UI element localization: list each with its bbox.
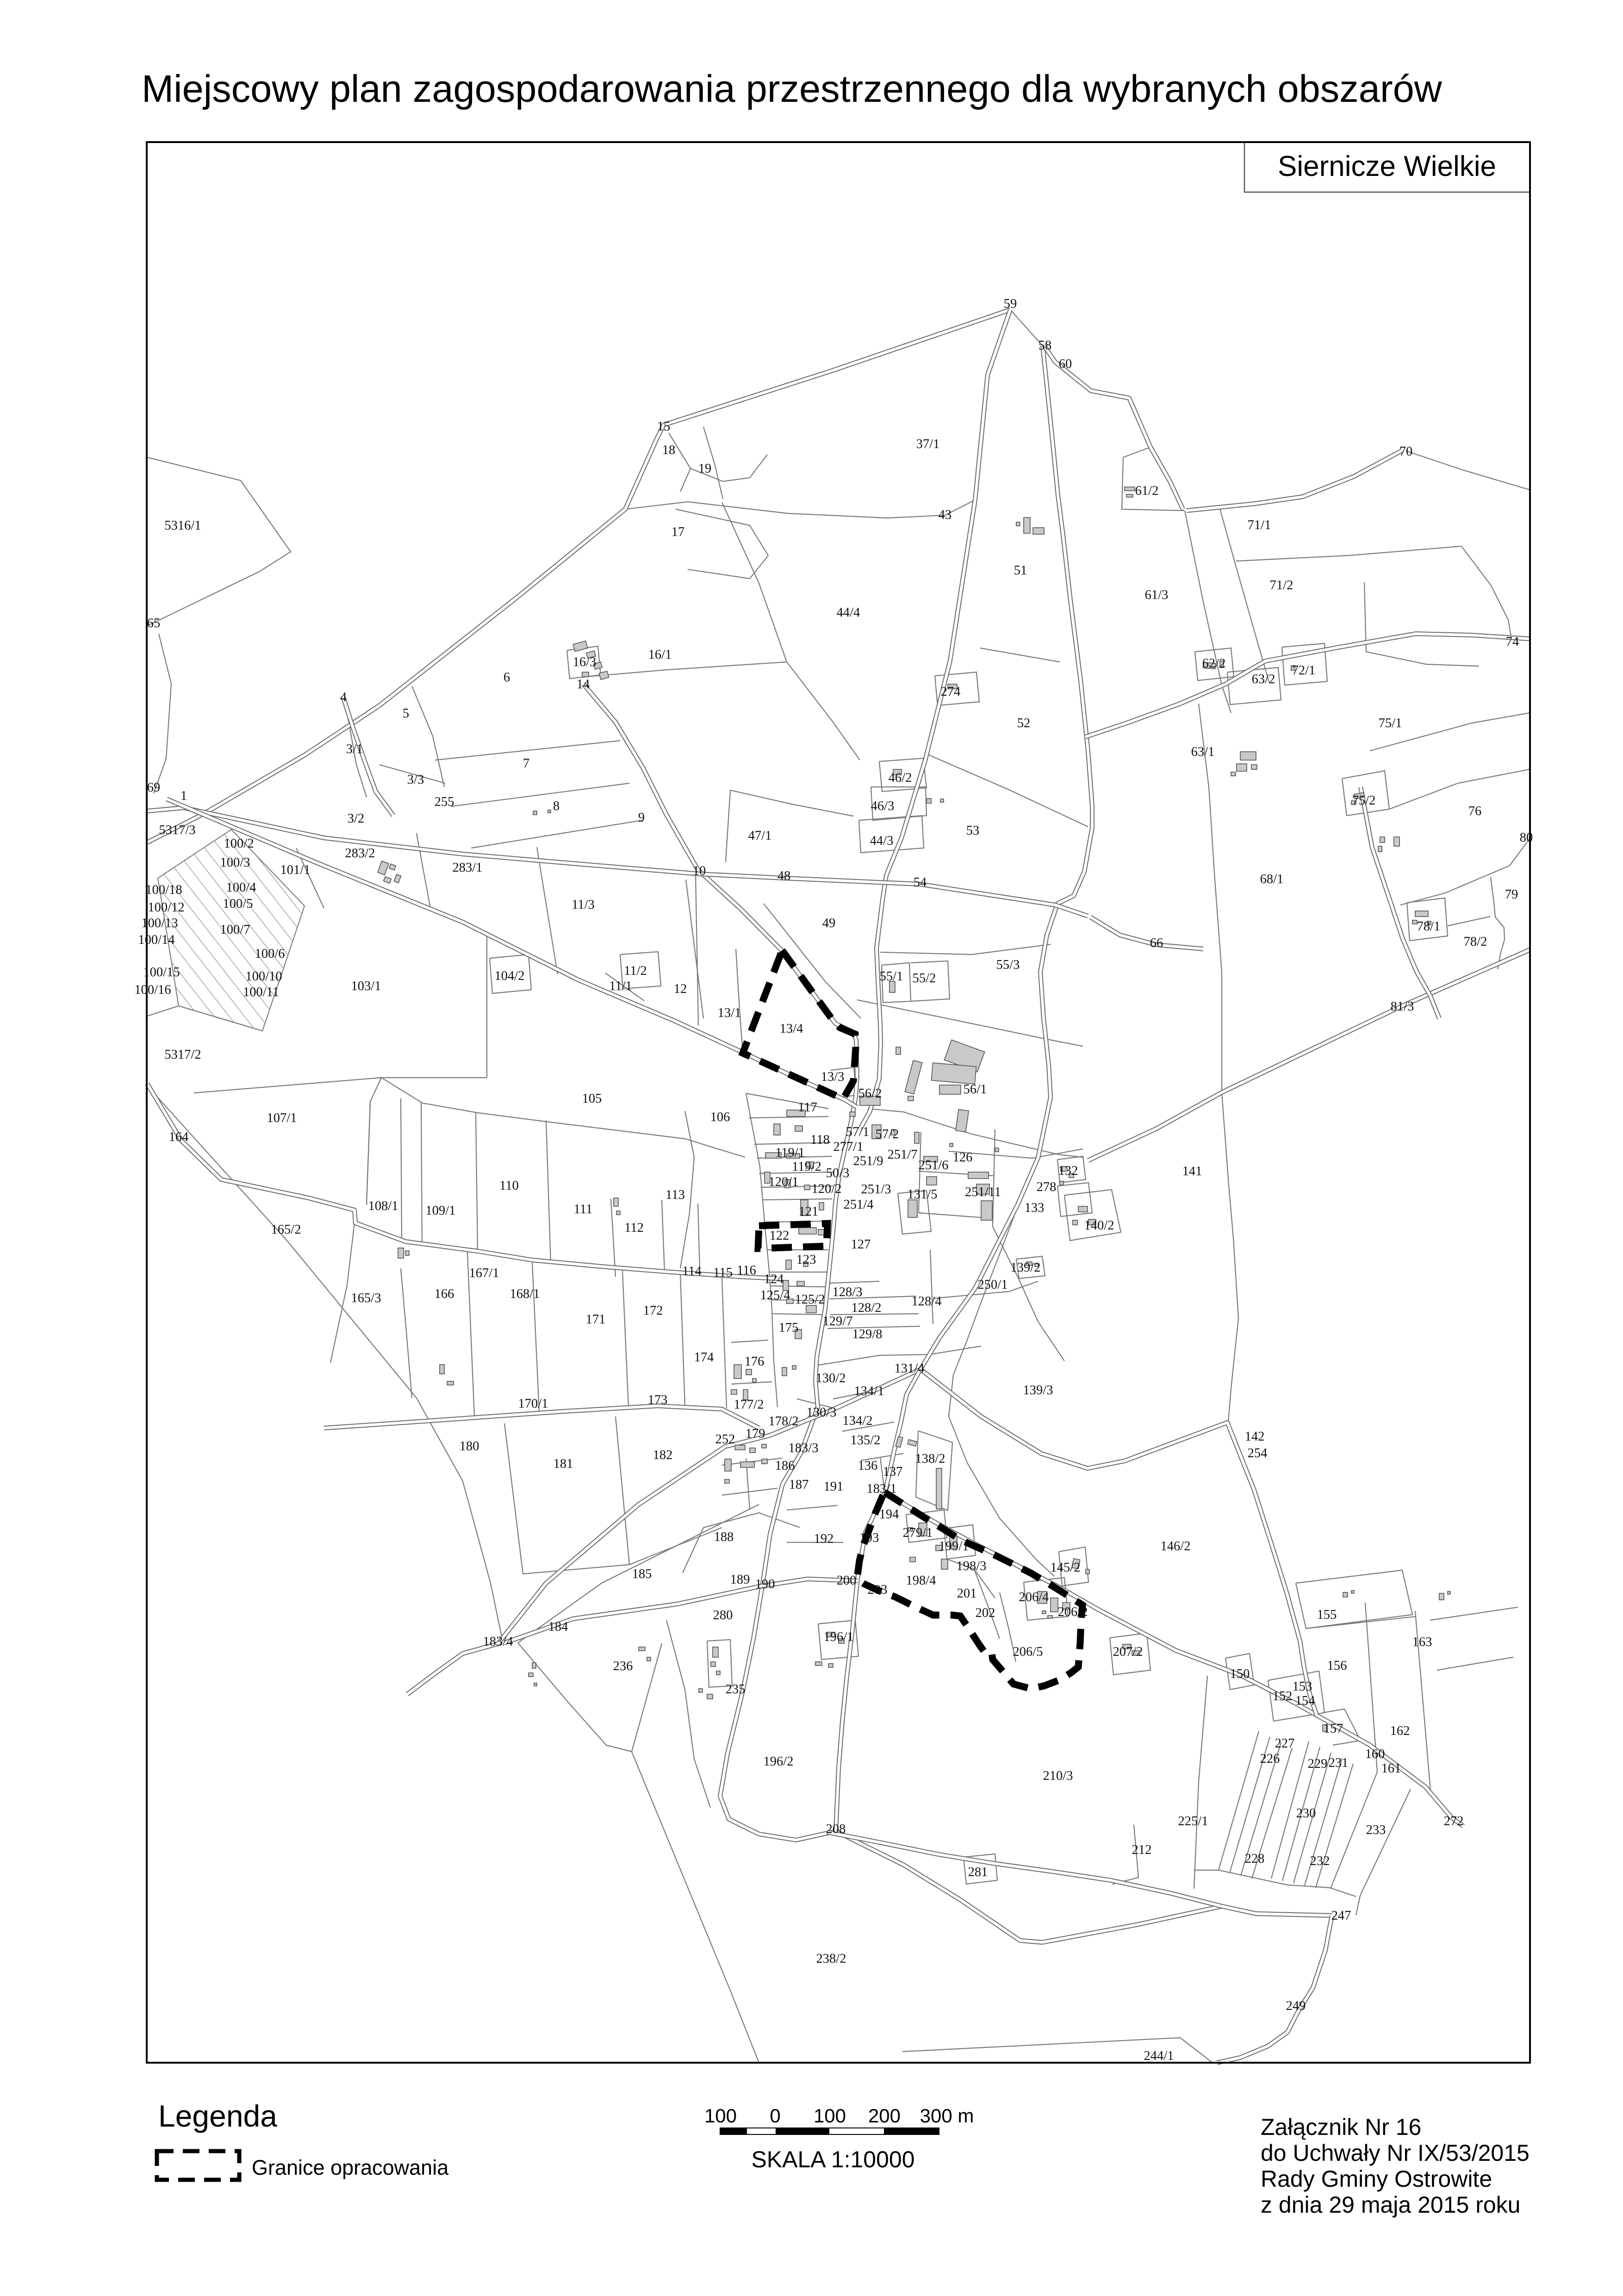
svg-text:186: 186 xyxy=(775,1459,795,1473)
svg-text:182: 182 xyxy=(653,1448,673,1462)
svg-text:115: 115 xyxy=(713,1266,733,1280)
svg-text:107/1: 107/1 xyxy=(267,1111,297,1125)
svg-text:196/1: 196/1 xyxy=(824,1630,854,1644)
svg-text:74: 74 xyxy=(1506,635,1519,649)
svg-text:145/2: 145/2 xyxy=(1051,1560,1081,1575)
svg-text:7: 7 xyxy=(523,756,529,771)
svg-text:105: 105 xyxy=(582,1092,602,1106)
svg-text:47/1: 47/1 xyxy=(748,829,772,843)
svg-text:165/2: 165/2 xyxy=(271,1223,301,1237)
svg-text:79: 79 xyxy=(1505,887,1518,902)
svg-text:3/2: 3/2 xyxy=(348,811,364,826)
svg-text:14: 14 xyxy=(577,677,590,692)
svg-text:103/1: 103/1 xyxy=(351,979,381,993)
svg-text:z dnia 29 maja 2015 roku: z dnia 29 maja 2015 roku xyxy=(1261,2192,1520,2218)
svg-text:119/1: 119/1 xyxy=(775,1146,805,1160)
svg-text:55/3: 55/3 xyxy=(996,958,1020,972)
svg-text:108/1: 108/1 xyxy=(368,1199,398,1213)
svg-text:187: 187 xyxy=(789,1478,809,1492)
svg-text:206/4: 206/4 xyxy=(1019,1590,1049,1604)
svg-text:251/4: 251/4 xyxy=(844,1198,874,1212)
svg-text:46/2: 46/2 xyxy=(889,771,912,785)
svg-text:75/1: 75/1 xyxy=(1379,716,1402,730)
svg-text:207/2: 207/2 xyxy=(1113,1645,1143,1659)
svg-text:164: 164 xyxy=(169,1130,189,1144)
svg-text:130/2: 130/2 xyxy=(816,1371,846,1385)
svg-text:160: 160 xyxy=(1365,1747,1385,1761)
svg-text:198/4: 198/4 xyxy=(906,1573,936,1588)
svg-text:Siernicze Wielkie: Siernicze Wielkie xyxy=(1278,150,1496,182)
svg-text:277/1: 277/1 xyxy=(833,1140,864,1154)
svg-text:44/4: 44/4 xyxy=(837,605,860,620)
svg-text:180: 180 xyxy=(460,1439,479,1454)
svg-text:251/11: 251/11 xyxy=(965,1185,1001,1199)
svg-text:163: 163 xyxy=(1412,1635,1432,1649)
svg-text:274: 274 xyxy=(941,685,961,699)
svg-text:100/10: 100/10 xyxy=(245,969,282,984)
svg-text:17: 17 xyxy=(672,525,685,539)
svg-text:206/5: 206/5 xyxy=(1013,1645,1043,1659)
svg-text:272: 272 xyxy=(1444,1814,1464,1828)
svg-text:3/3: 3/3 xyxy=(407,773,424,787)
svg-text:15: 15 xyxy=(657,419,671,434)
svg-text:200: 200 xyxy=(868,2105,901,2127)
svg-text:249: 249 xyxy=(1286,1999,1306,2013)
svg-text:235: 235 xyxy=(726,1682,746,1697)
svg-text:56/2: 56/2 xyxy=(858,1086,882,1101)
svg-text:44/3: 44/3 xyxy=(870,834,894,848)
svg-text:100/16: 100/16 xyxy=(134,983,171,997)
svg-text:236: 236 xyxy=(613,1659,633,1673)
svg-text:135/2: 135/2 xyxy=(851,1433,881,1447)
svg-text:238/2: 238/2 xyxy=(816,1952,846,1966)
svg-text:179: 179 xyxy=(746,1427,765,1441)
svg-text:251/6: 251/6 xyxy=(919,1158,949,1173)
svg-text:153: 153 xyxy=(1293,1679,1312,1694)
svg-text:177/2: 177/2 xyxy=(734,1398,764,1412)
svg-text:136: 136 xyxy=(858,1459,878,1473)
svg-text:162: 162 xyxy=(1390,1724,1410,1738)
svg-text:78/1: 78/1 xyxy=(1417,919,1441,934)
svg-text:100/14: 100/14 xyxy=(138,933,174,947)
svg-text:100/3: 100/3 xyxy=(220,855,250,870)
svg-text:128/2: 128/2 xyxy=(852,1301,882,1315)
svg-text:127: 127 xyxy=(851,1237,871,1252)
svg-text:244/1: 244/1 xyxy=(1144,2049,1174,2063)
svg-text:137: 137 xyxy=(883,1465,903,1479)
svg-text:117: 117 xyxy=(798,1100,817,1115)
svg-text:100: 100 xyxy=(814,2105,846,2127)
svg-text:184: 184 xyxy=(548,1620,568,1634)
svg-text:16/1: 16/1 xyxy=(648,648,672,662)
svg-text:9: 9 xyxy=(638,811,645,825)
svg-text:156: 156 xyxy=(1327,1659,1347,1673)
svg-text:do Uchwały Nr IX/53/2015: do Uchwały Nr IX/53/2015 xyxy=(1261,2140,1530,2166)
svg-text:283/1: 283/1 xyxy=(453,861,483,875)
svg-text:128/4: 128/4 xyxy=(912,1294,942,1309)
svg-text:69: 69 xyxy=(147,780,161,795)
svg-text:155: 155 xyxy=(1317,1608,1337,1622)
svg-text:4: 4 xyxy=(340,690,347,705)
svg-text:190: 190 xyxy=(755,1577,775,1591)
svg-text:191: 191 xyxy=(824,1479,844,1494)
svg-text:8: 8 xyxy=(553,799,560,813)
svg-text:11/3: 11/3 xyxy=(572,898,595,912)
svg-text:161: 161 xyxy=(1381,1761,1401,1776)
svg-text:154: 154 xyxy=(1295,1694,1315,1708)
svg-text:57/2: 57/2 xyxy=(876,1127,899,1142)
svg-text:51: 51 xyxy=(1014,563,1027,578)
svg-text:185: 185 xyxy=(632,1567,652,1581)
svg-text:111: 111 xyxy=(574,1202,593,1217)
svg-text:78/2: 78/2 xyxy=(1464,935,1487,949)
svg-text:129/8: 129/8 xyxy=(852,1327,883,1341)
svg-text:125/4: 125/4 xyxy=(760,1288,790,1303)
svg-text:228: 228 xyxy=(1245,1852,1265,1866)
svg-text:60: 60 xyxy=(1059,357,1072,371)
svg-text:16/3: 16/3 xyxy=(573,655,597,669)
svg-text:247: 247 xyxy=(1331,1909,1351,1923)
svg-text:11/2: 11/2 xyxy=(624,964,647,978)
svg-text:122: 122 xyxy=(770,1229,790,1243)
svg-text:100/12: 100/12 xyxy=(148,900,184,915)
svg-text:112: 112 xyxy=(624,1221,644,1235)
svg-text:113: 113 xyxy=(665,1188,685,1202)
svg-text:1: 1 xyxy=(180,789,187,803)
svg-text:63/2: 63/2 xyxy=(1252,672,1275,686)
svg-text:192: 192 xyxy=(814,1532,834,1546)
svg-text:278: 278 xyxy=(1037,1180,1057,1194)
svg-text:19: 19 xyxy=(698,462,712,476)
svg-text:133: 133 xyxy=(1025,1201,1045,1215)
svg-text:49: 49 xyxy=(822,916,836,930)
svg-text:252: 252 xyxy=(715,1432,735,1447)
svg-text:57/1: 57/1 xyxy=(846,1125,870,1139)
svg-text:104/2: 104/2 xyxy=(495,969,525,983)
svg-text:61/2: 61/2 xyxy=(1135,484,1159,498)
svg-text:172: 172 xyxy=(643,1304,663,1318)
svg-text:196/2: 196/2 xyxy=(764,1754,794,1769)
svg-text:202: 202 xyxy=(976,1606,995,1620)
svg-text:225/1: 225/1 xyxy=(1178,1814,1208,1828)
svg-text:121: 121 xyxy=(799,1204,819,1219)
svg-text:150: 150 xyxy=(1230,1667,1250,1681)
svg-text:183/1: 183/1 xyxy=(867,1482,897,1496)
svg-text:198/3: 198/3 xyxy=(957,1559,987,1573)
svg-text:65: 65 xyxy=(147,616,161,630)
svg-text:131/4: 131/4 xyxy=(895,1361,925,1376)
svg-text:11/1: 11/1 xyxy=(609,979,632,993)
svg-text:53: 53 xyxy=(966,824,980,838)
svg-text:100/5: 100/5 xyxy=(223,897,253,911)
svg-text:193: 193 xyxy=(859,1531,879,1545)
svg-text:3/1: 3/1 xyxy=(346,742,363,756)
svg-text:120/2: 120/2 xyxy=(812,1182,842,1196)
svg-text:70: 70 xyxy=(1399,444,1413,459)
svg-text:139/3: 139/3 xyxy=(1023,1383,1053,1398)
svg-text:58: 58 xyxy=(1038,338,1052,353)
svg-text:280: 280 xyxy=(713,1608,733,1622)
svg-text:10: 10 xyxy=(693,864,706,878)
svg-text:199/1: 199/1 xyxy=(939,1539,969,1554)
svg-text:114: 114 xyxy=(682,1264,702,1279)
svg-text:13/4: 13/4 xyxy=(780,1022,803,1036)
svg-text:142: 142 xyxy=(1245,1429,1265,1444)
svg-text:175: 175 xyxy=(779,1321,799,1335)
svg-text:18: 18 xyxy=(662,443,676,457)
svg-text:208: 208 xyxy=(826,1822,846,1836)
svg-text:250/1: 250/1 xyxy=(978,1278,1008,1292)
svg-text:116: 116 xyxy=(737,1263,756,1278)
svg-text:206/2: 206/2 xyxy=(1058,1605,1088,1619)
svg-text:134/1: 134/1 xyxy=(854,1384,884,1398)
svg-text:6: 6 xyxy=(504,670,510,685)
svg-text:171: 171 xyxy=(586,1312,606,1327)
svg-text:165/3: 165/3 xyxy=(351,1291,381,1305)
svg-text:130/3: 130/3 xyxy=(807,1405,837,1420)
svg-text:174: 174 xyxy=(694,1350,714,1365)
svg-text:141: 141 xyxy=(1182,1164,1202,1179)
svg-text:Załącznik Nr 16: Załącznik Nr 16 xyxy=(1261,2114,1421,2140)
svg-text:62/2: 62/2 xyxy=(1202,656,1226,671)
svg-text:168/1: 168/1 xyxy=(510,1287,540,1301)
svg-text:Rady Gminy Ostrowite: Rady Gminy Ostrowite xyxy=(1261,2166,1492,2192)
svg-text:100: 100 xyxy=(704,2105,737,2127)
svg-text:100/11: 100/11 xyxy=(243,985,279,999)
svg-text:119/2: 119/2 xyxy=(792,1160,821,1174)
svg-text:279/1: 279/1 xyxy=(903,1526,933,1540)
svg-text:183/3: 183/3 xyxy=(789,1441,819,1455)
svg-text:50/3: 50/3 xyxy=(826,1166,850,1180)
svg-text:68/1: 68/1 xyxy=(1260,872,1284,886)
svg-text:146/2: 146/2 xyxy=(1161,1539,1191,1554)
svg-text:230: 230 xyxy=(1296,1806,1316,1821)
svg-text:100/2: 100/2 xyxy=(224,836,254,851)
svg-text:52: 52 xyxy=(1017,716,1031,730)
svg-text:109/1: 109/1 xyxy=(426,1204,456,1218)
svg-text:125/2: 125/2 xyxy=(795,1292,825,1307)
svg-text:229: 229 xyxy=(1308,1757,1328,1771)
svg-text:13/3: 13/3 xyxy=(821,1070,845,1084)
svg-text:55/2: 55/2 xyxy=(913,971,936,986)
svg-text:251/7: 251/7 xyxy=(888,1148,918,1162)
svg-text:61/3: 61/3 xyxy=(1145,588,1169,602)
svg-text:100/18: 100/18 xyxy=(145,883,182,897)
svg-text:138/2: 138/2 xyxy=(915,1452,945,1466)
svg-text:100/6: 100/6 xyxy=(255,947,285,961)
svg-text:226: 226 xyxy=(1260,1752,1280,1766)
svg-text:183/4: 183/4 xyxy=(483,1635,513,1649)
svg-text:5316/1: 5316/1 xyxy=(164,518,201,533)
svg-text:71/1: 71/1 xyxy=(1248,518,1271,532)
svg-text:251/9: 251/9 xyxy=(853,1154,883,1168)
svg-text:101/1: 101/1 xyxy=(280,863,311,877)
svg-text:110: 110 xyxy=(499,1179,519,1193)
svg-text:212: 212 xyxy=(1132,1843,1152,1857)
svg-text:106: 106 xyxy=(710,1110,730,1124)
svg-text:176: 176 xyxy=(745,1354,765,1369)
svg-text:283/2: 283/2 xyxy=(345,846,375,861)
svg-text:167/1: 167/1 xyxy=(469,1266,499,1280)
svg-text:120/1: 120/1 xyxy=(769,1175,799,1189)
svg-text:Legenda: Legenda xyxy=(158,2099,277,2133)
svg-text:54: 54 xyxy=(914,875,927,890)
svg-text:66: 66 xyxy=(1150,936,1163,950)
svg-text:5: 5 xyxy=(403,706,409,721)
svg-text:48: 48 xyxy=(777,869,791,883)
svg-text:56/1: 56/1 xyxy=(964,1082,987,1097)
svg-text:124: 124 xyxy=(764,1272,784,1286)
svg-text:13/1: 13/1 xyxy=(718,1006,741,1020)
svg-text:188: 188 xyxy=(714,1530,734,1544)
svg-text:152: 152 xyxy=(1273,1689,1293,1703)
svg-text:189: 189 xyxy=(730,1572,750,1587)
svg-text:200: 200 xyxy=(837,1573,857,1588)
svg-text:254: 254 xyxy=(1248,1446,1268,1460)
svg-text:210/3: 210/3 xyxy=(1043,1769,1073,1783)
svg-text:100/15: 100/15 xyxy=(143,965,180,980)
svg-text:231: 231 xyxy=(1329,1756,1349,1770)
svg-text:140/2: 140/2 xyxy=(1084,1218,1114,1233)
svg-text:139/2: 139/2 xyxy=(1011,1260,1041,1275)
svg-text:194: 194 xyxy=(879,1507,899,1522)
svg-text:227: 227 xyxy=(1275,1736,1295,1751)
svg-text:100/4: 100/4 xyxy=(226,880,256,895)
svg-text:55/1: 55/1 xyxy=(880,969,903,984)
svg-text:5317/3: 5317/3 xyxy=(159,823,195,837)
svg-text:46/3: 46/3 xyxy=(871,799,895,813)
svg-text:123: 123 xyxy=(796,1253,816,1267)
svg-text:71/2: 71/2 xyxy=(1270,578,1293,593)
svg-text:170/1: 170/1 xyxy=(518,1397,548,1411)
svg-text:203: 203 xyxy=(868,1583,888,1597)
svg-text:63/1: 63/1 xyxy=(1191,745,1215,759)
svg-text:76: 76 xyxy=(1468,804,1482,818)
svg-text:SKALA 1:10000: SKALA 1:10000 xyxy=(751,2146,914,2172)
svg-text:118: 118 xyxy=(810,1133,830,1147)
svg-text:255: 255 xyxy=(435,795,454,809)
svg-text:178/2: 178/2 xyxy=(769,1414,799,1429)
svg-text:126: 126 xyxy=(953,1150,973,1165)
svg-text:100/7: 100/7 xyxy=(220,923,250,937)
svg-text:181: 181 xyxy=(553,1457,573,1471)
svg-text:134/2: 134/2 xyxy=(843,1414,873,1428)
svg-text:0: 0 xyxy=(770,2105,780,2127)
svg-text:Granice opracowania: Granice opracowania xyxy=(252,2156,449,2179)
svg-text:132: 132 xyxy=(1058,1164,1078,1178)
svg-text:75/2: 75/2 xyxy=(1352,793,1376,808)
svg-text:232: 232 xyxy=(1310,1854,1330,1868)
svg-text:131/5: 131/5 xyxy=(908,1187,938,1202)
svg-text:43: 43 xyxy=(939,508,952,522)
svg-text:5317/2: 5317/2 xyxy=(164,1048,201,1062)
svg-text:173: 173 xyxy=(648,1393,668,1407)
svg-text:72/1: 72/1 xyxy=(1292,663,1316,678)
svg-text:129/7: 129/7 xyxy=(823,1314,853,1329)
svg-text:233: 233 xyxy=(1366,1823,1386,1837)
svg-text:281: 281 xyxy=(968,1865,988,1879)
svg-text:128/3: 128/3 xyxy=(833,1285,863,1299)
svg-text:166: 166 xyxy=(435,1287,454,1301)
svg-text:37/1: 37/1 xyxy=(916,437,940,451)
svg-text:81/3: 81/3 xyxy=(1391,999,1414,1014)
svg-text:59: 59 xyxy=(1004,297,1017,311)
svg-text:300 m: 300 m xyxy=(920,2105,974,2127)
svg-text:12: 12 xyxy=(674,982,687,996)
svg-text:251/3: 251/3 xyxy=(861,1182,891,1197)
svg-text:201: 201 xyxy=(957,1586,977,1601)
svg-text:157: 157 xyxy=(1324,1722,1343,1736)
